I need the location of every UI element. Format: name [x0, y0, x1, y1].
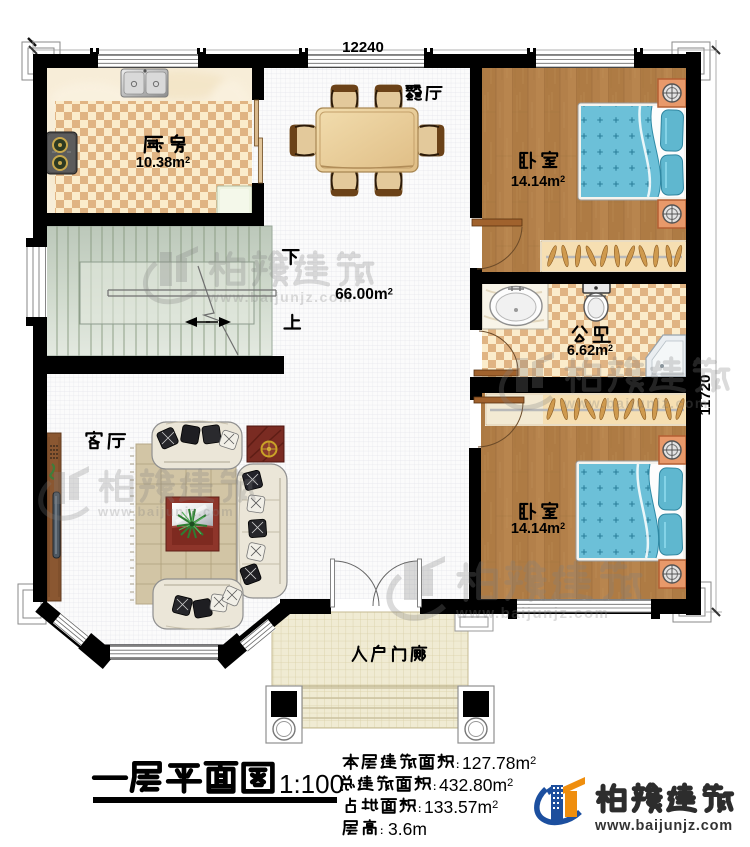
svg-text:www.baijunjz.com: www.baijunjz.com — [455, 605, 609, 622]
svg-text::: : — [433, 782, 436, 793]
svg-text:www.baijunjz.com: www.baijunjz.com — [594, 818, 733, 834]
svg-text::: : — [418, 804, 421, 815]
svg-text::: : — [380, 826, 383, 837]
svg-text::: : — [456, 760, 459, 771]
svg-text:66.00m2: 66.00m2 — [335, 286, 393, 303]
svg-text:www.baijunjz.com: www.baijunjz.com — [563, 395, 709, 411]
svg-text:3.6m: 3.6m — [388, 819, 427, 839]
svg-text:127.78m2: 127.78m2 — [462, 753, 536, 773]
svg-text:12240: 12240 — [342, 39, 384, 56]
svg-text:6.62m2: 6.62m2 — [567, 343, 613, 359]
svg-text:14.14m2: 14.14m2 — [511, 521, 565, 537]
svg-text:14.14m2: 14.14m2 — [511, 174, 565, 190]
svg-text:www.baijunjz.com: www.baijunjz.com — [207, 289, 353, 305]
svg-text:10.38m2: 10.38m2 — [136, 155, 190, 171]
svg-text:432.80m2: 432.80m2 — [439, 775, 513, 795]
svg-text:1:100: 1:100 — [279, 769, 344, 799]
svg-text:133.57m2: 133.57m2 — [424, 797, 498, 817]
svg-text:www.baijunjz.com: www.baijunjz.com — [97, 504, 234, 519]
